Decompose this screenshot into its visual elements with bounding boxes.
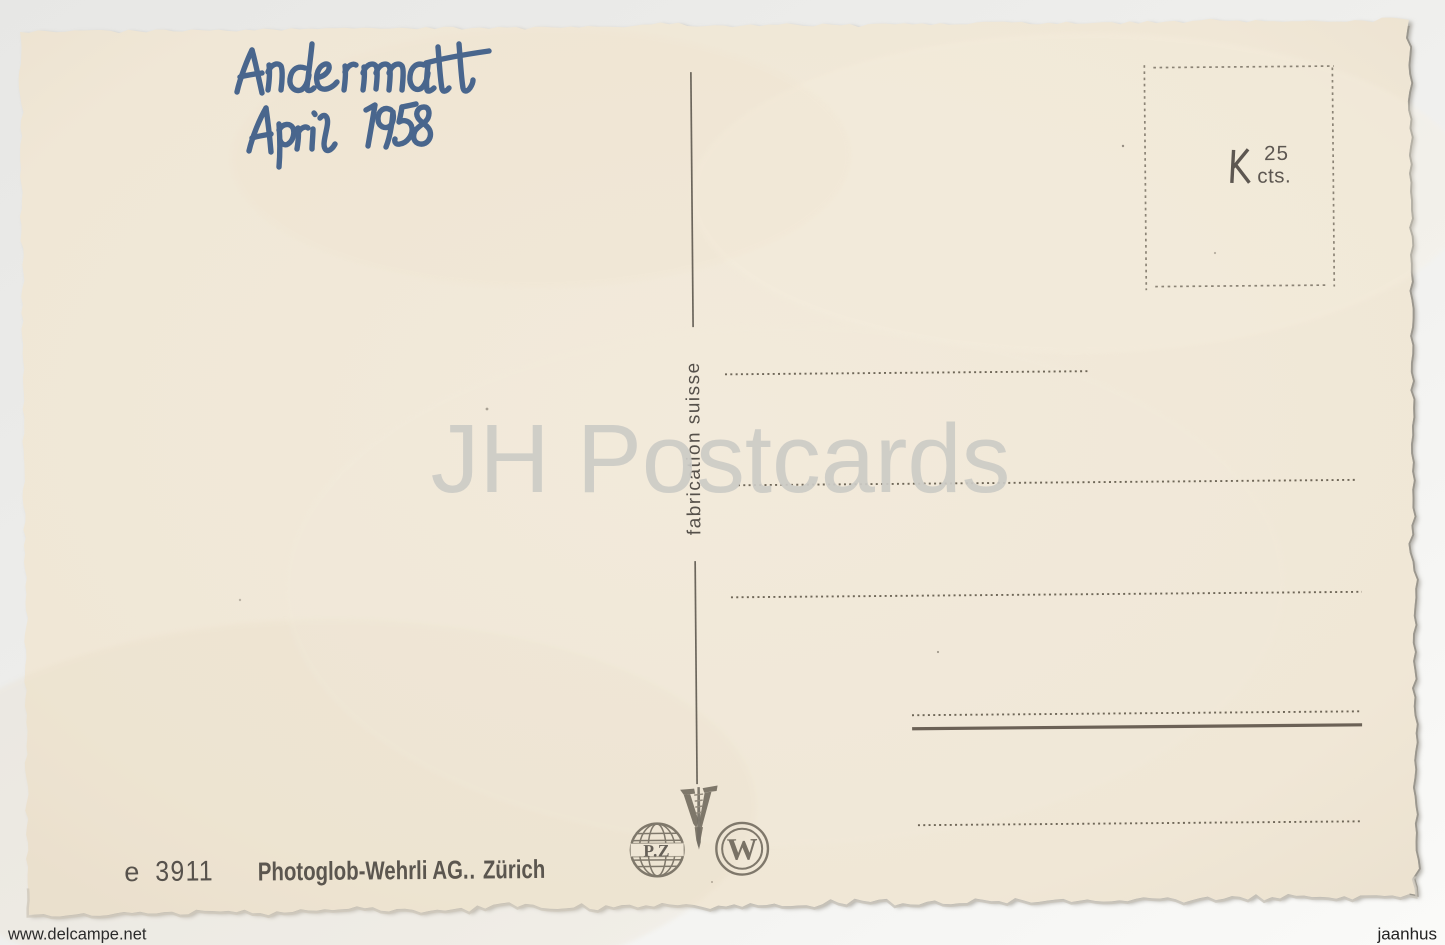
svg-text:jaanhus: jaanhus [1376,925,1437,944]
svg-text:Photoglob-Wehrli AG..Zürich: Photoglob-Wehrli AG..Zürich [258,855,546,886]
svg-text:W: W [727,831,758,866]
svg-text:25: 25 [1264,142,1289,165]
svg-text:3911: 3911 [155,855,214,888]
svg-text:cts.: cts. [1257,164,1291,187]
svg-text:P.Z: P.Z [643,840,670,860]
svg-text:www.delcampe.net: www.delcampe.net [7,926,147,944]
svg-text:e: e [124,857,139,887]
svg-text:JH Postcards: JH Postcards [431,404,1011,513]
